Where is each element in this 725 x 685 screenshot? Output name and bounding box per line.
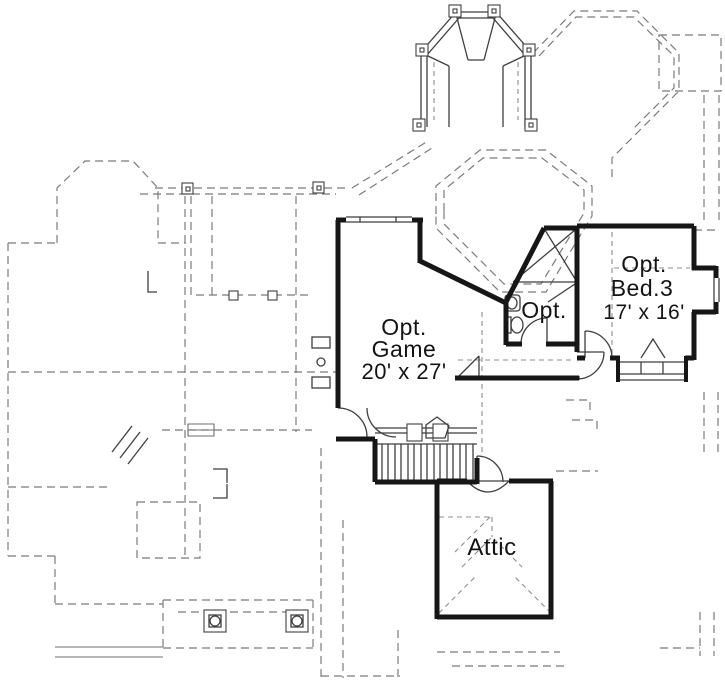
- attic-label: Attic: [467, 534, 516, 561]
- balcony-outline: [421, 12, 531, 127]
- bath-label: Opt.: [521, 297, 566, 323]
- attic-roof-lines: [439, 517, 551, 613]
- bed3-label-line1: Opt.: [621, 251, 666, 277]
- porch-columns: [204, 610, 308, 632]
- floor-plan-page: Opt. Game 20' x 27' Opt. Opt. Bed.3 17' …: [0, 0, 725, 685]
- stair-walls: [336, 439, 477, 484]
- game-room-dimensions: 20' x 27': [361, 359, 446, 384]
- stair-newel-post: [407, 424, 422, 441]
- staircase: [375, 417, 477, 481]
- game-room-diagonal-wall: [420, 220, 506, 303]
- lower-floor-left-wing-outline: [8, 161, 400, 678]
- room-labels: Opt. Game 20' x 27' Opt. Opt. Bed.3 17' …: [361, 251, 684, 561]
- bed3-label-line2: Bed.3: [611, 275, 674, 301]
- bed3-right-walls: [692, 226, 716, 360]
- bed3-dimensions: 17' x 16': [603, 301, 684, 324]
- roof-rail-below: [155, 182, 345, 194]
- balcony-posts: [413, 5, 537, 131]
- lower-floor-misc-marks: [112, 271, 330, 498]
- floor-plan-drawing: Opt. Game 20' x 27' Opt. Opt. Bed.3 17' …: [0, 0, 725, 685]
